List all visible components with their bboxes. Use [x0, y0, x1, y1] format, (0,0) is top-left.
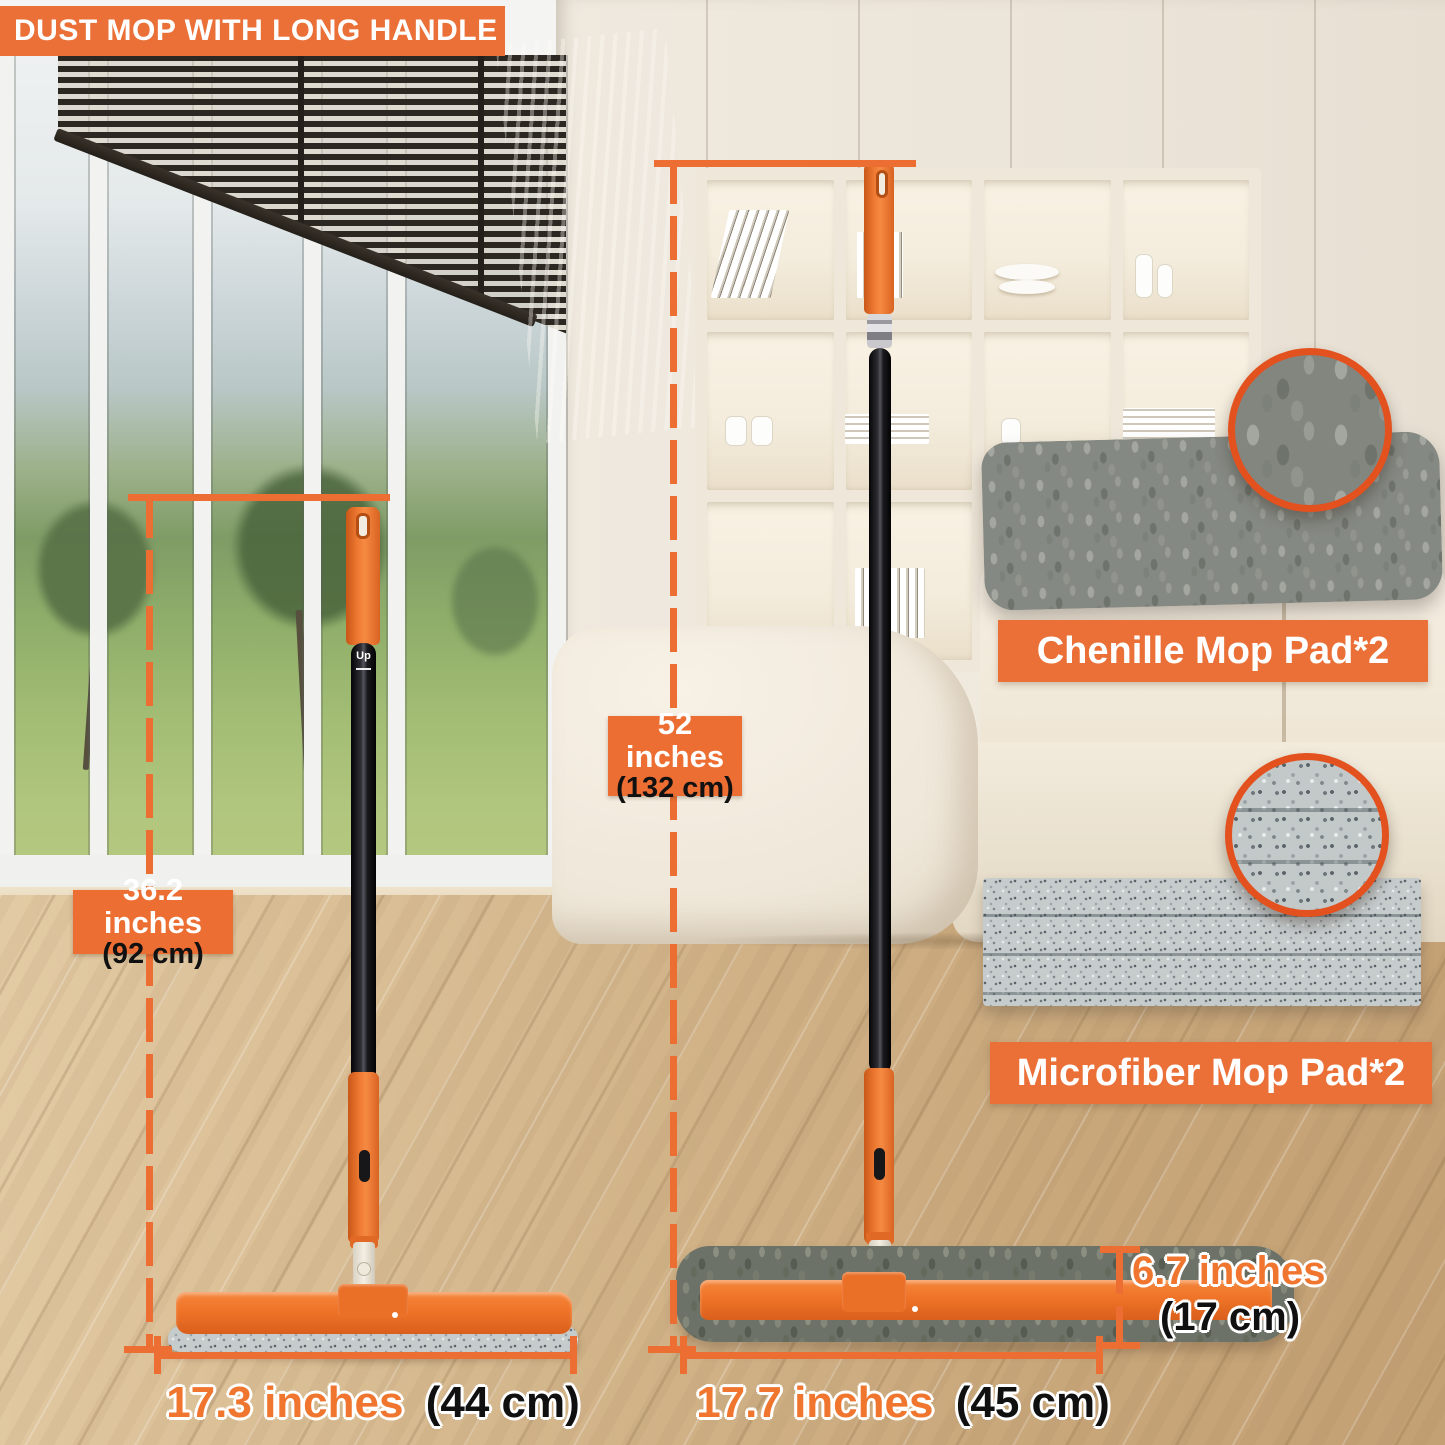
right-height-metric: (132 cm) — [608, 773, 742, 803]
shelf-cell — [846, 332, 973, 490]
depth-label: 6.7 inches (17 cm) — [1132, 1248, 1325, 1340]
left-mop-sleeve-hole — [359, 1150, 370, 1182]
left-width-metric: (44 cm) — [426, 1378, 580, 1427]
depth-vertical-line — [1116, 1250, 1123, 1348]
left-height-value: 36.2 inches — [73, 874, 233, 939]
shelf-decor-cup — [725, 416, 747, 446]
microfiber-pad-label: Microfiber Mop Pad*2 — [1017, 1052, 1406, 1095]
left-mop-hanging-slot — [356, 513, 370, 539]
left-height-metric: (92 cm) — [73, 939, 233, 969]
right-mop-sleeve-hole — [874, 1148, 885, 1180]
left-mop-screw-dot — [392, 1312, 398, 1318]
right-width-metric: (45 cm) — [956, 1378, 1110, 1427]
right-width-value: 17.7 inches — [696, 1378, 933, 1427]
left-width-tick-end — [570, 1336, 577, 1374]
microfiber-zoom-circle — [1225, 753, 1389, 917]
title-text: DUST MOP WITH LONG HANDLE — [14, 14, 498, 48]
right-width-tick-start — [680, 1336, 687, 1374]
microfiber-pad-banner: Microfiber Mop Pad*2 — [990, 1042, 1432, 1104]
right-width-label: 17.7 inches (45 cm) — [643, 1378, 1163, 1428]
shelf-decor-vase — [1157, 264, 1173, 298]
depth-value: 6.7 inches — [1132, 1249, 1325, 1293]
depth-metric: (17 cm) — [1160, 1295, 1300, 1339]
left-mop-pole — [351, 643, 376, 1095]
right-mop-pole — [869, 348, 891, 1074]
chenille-pad-label: Chenille Mop Pad*2 — [1037, 630, 1390, 673]
left-width-line — [158, 1352, 576, 1359]
shelf-decor-dish — [999, 280, 1055, 294]
right-height-top-line — [654, 160, 916, 167]
right-height-value: 52 inches — [608, 708, 742, 773]
left-width-tick-start — [154, 1336, 161, 1374]
left-mop-pole-arrow-mark — [356, 668, 371, 670]
shelf-decor-vase — [1135, 254, 1153, 298]
window-mullion — [90, 55, 107, 890]
shelf-cell — [1123, 180, 1250, 320]
right-width-line — [684, 1352, 1102, 1359]
left-width-label: 17.3 inches (44 cm) — [123, 1378, 623, 1428]
product-hero-image: Chenille Mop Pad*2 Microfiber Mop Pad*2 … — [0, 0, 1445, 1445]
shelf-decor-cup — [751, 416, 773, 446]
chenille-pad-banner: Chenille Mop Pad*2 — [998, 620, 1428, 682]
right-mop-hanging-slot — [876, 170, 888, 198]
shelf-decor-dish — [995, 264, 1059, 280]
chenille-zoom-circle — [1228, 348, 1392, 512]
right-mop-screw-dot — [912, 1306, 918, 1312]
left-height-label: 36.2 inches (92 cm) — [73, 890, 233, 954]
window-mullion — [0, 55, 14, 890]
shelf-cell — [984, 180, 1111, 320]
title-banner: DUST MOP WITH LONG HANDLE — [0, 6, 505, 56]
depth-tick-bottom — [1100, 1342, 1140, 1349]
shelf-cell — [707, 332, 834, 490]
right-mop-collar-ring — [867, 314, 892, 348]
right-height-label: 52 inches (132 cm) — [608, 716, 742, 796]
left-mop-joint-roller — [357, 1262, 371, 1276]
left-mop-pole-logo: Up — [352, 650, 375, 662]
tree-canopy — [430, 520, 560, 700]
right-mop-head-mount — [842, 1272, 906, 1312]
left-width-value: 17.3 inches — [166, 1378, 403, 1427]
left-height-top-line — [128, 494, 390, 501]
